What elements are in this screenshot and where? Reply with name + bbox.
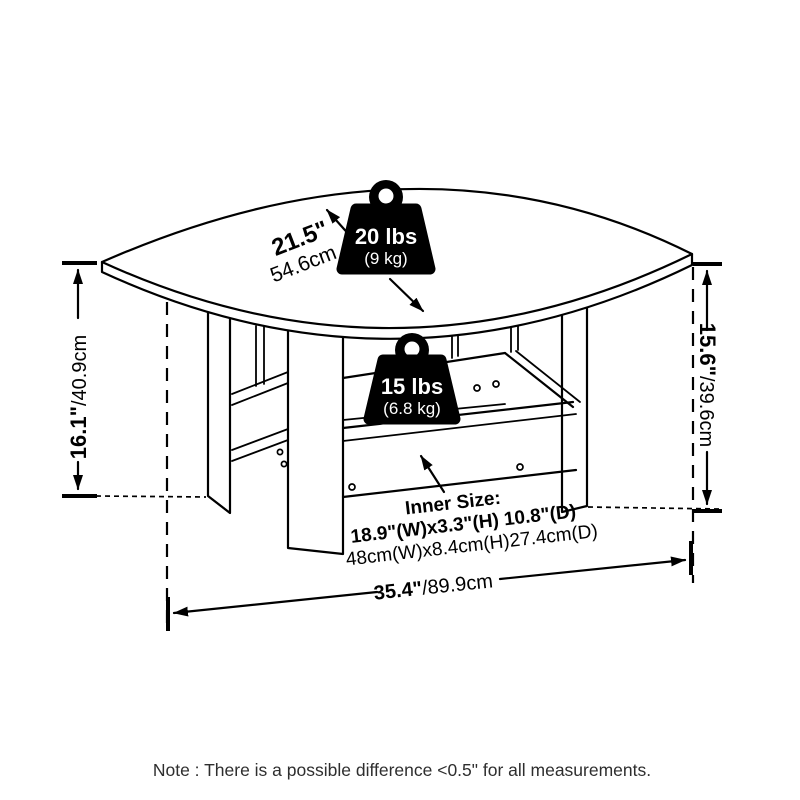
screw-hole (277, 449, 282, 454)
weight-ring-hole (405, 342, 420, 357)
weight-ring-hole (379, 189, 394, 204)
screw-hole (517, 464, 523, 470)
ground-projection-right (588, 507, 719, 509)
screw-hole (474, 385, 480, 391)
screw-hole (281, 461, 286, 466)
dimension-arrow-right (500, 560, 685, 579)
width-inches-label: 35.4" (373, 578, 423, 605)
left-leg-panel (208, 308, 230, 513)
tabletop-weight-kilograms: (9 kg) (364, 249, 407, 268)
width-cm-label: /89.9cm (421, 570, 494, 599)
product-dimension-diagram: 16.1" /40.9cm 15.6" /39.6cm 35.4" /89.9c… (0, 0, 800, 800)
measurement-note: Note : There is a possible difference <0… (153, 760, 651, 780)
center-leg-panel (288, 318, 343, 554)
screw-hole (349, 484, 355, 490)
shelf-left-gap (232, 325, 288, 467)
ground-projection-left (96, 496, 206, 497)
height-left-cm-label: /40.9cm (69, 335, 91, 406)
height-dimension-right: 15.6" /39.6cm (693, 264, 722, 511)
height-left-inches-label: 16.1" (66, 406, 91, 459)
dimension-arrow-left (174, 592, 377, 613)
inner-size-annotation: Inner Size: 18.9"(W)x3.3"(H) 10.8"(D) 48… (340, 456, 599, 570)
right-leg-panel (562, 298, 587, 512)
coffee-table-diagram: 16.1" /40.9cm 15.6" /39.6cm 35.4" /89.9c… (0, 0, 800, 800)
tabletop-weight-pounds: 20 lbs (355, 224, 417, 249)
shelf-weight-icon: 15 lbs (6.8 kg) (369, 333, 455, 419)
height-right-cm-label: /39.6cm (695, 376, 717, 447)
shelf-weight-kilograms: (6.8 kg) (383, 399, 441, 418)
height-dimension-left: 16.1" /40.9cm (62, 263, 97, 496)
shelf-weight-pounds: 15 lbs (381, 374, 443, 399)
screw-hole (493, 381, 499, 387)
height-right-inches-label: 15.6" (695, 323, 720, 376)
